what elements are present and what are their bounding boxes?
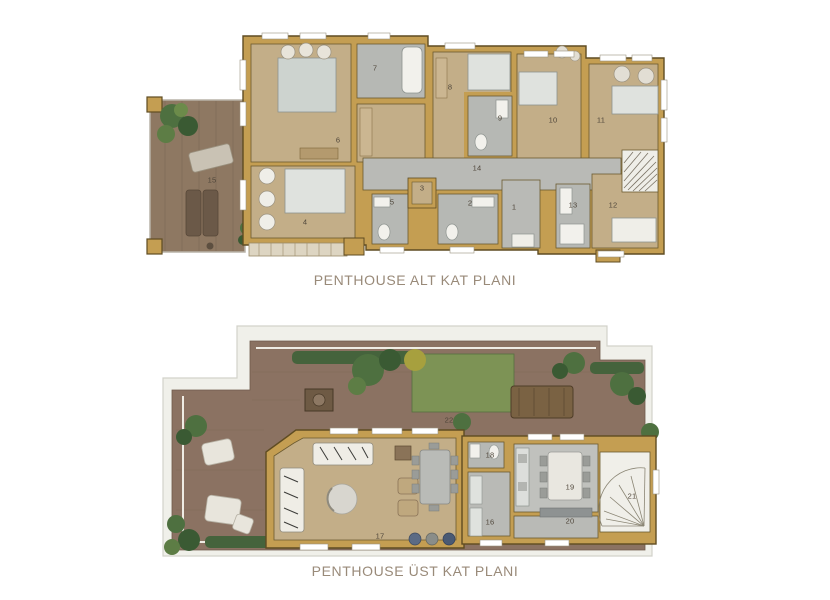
stairs-icon xyxy=(622,150,658,192)
bed xyxy=(519,72,557,105)
cooktop xyxy=(518,454,527,463)
stool xyxy=(409,533,421,545)
sink xyxy=(470,444,480,458)
spiral-stairs-icon xyxy=(599,452,650,532)
room-10-bedroom xyxy=(517,54,581,164)
side-table xyxy=(207,243,214,250)
kitchen-sink xyxy=(518,482,527,491)
counter xyxy=(540,508,592,517)
cabinet xyxy=(470,476,482,504)
grass-patch xyxy=(412,354,514,412)
sofa xyxy=(280,468,304,532)
sink xyxy=(560,188,572,214)
hedge xyxy=(590,362,644,374)
dresser xyxy=(300,148,338,159)
lower-floor-plan xyxy=(147,33,667,262)
toilet xyxy=(378,224,390,240)
shower xyxy=(560,224,584,244)
toilet xyxy=(489,445,499,459)
bed xyxy=(278,58,336,112)
sofa xyxy=(313,443,373,465)
bed xyxy=(285,169,345,213)
sink xyxy=(496,100,508,118)
terrace-15 xyxy=(147,97,254,254)
lower-plan-title: PENTHOUSE ALT KAT PLANI xyxy=(0,272,830,288)
armchair xyxy=(398,500,418,516)
tv-unit xyxy=(395,446,411,460)
room-3-closet xyxy=(412,182,432,204)
upper-floor-plan xyxy=(163,326,659,556)
sink xyxy=(374,197,390,207)
terrace-post xyxy=(147,239,162,254)
lounger xyxy=(186,190,201,236)
upper-plan-title: PENTHOUSE ÜST KAT PLANI xyxy=(0,563,830,579)
lounger xyxy=(203,190,218,236)
toilet xyxy=(475,134,487,150)
sink xyxy=(472,197,494,207)
bbq-icon xyxy=(305,389,333,411)
kitchen-table xyxy=(548,452,582,500)
floor-plan-page: PENTHOUSE ALT KAT PLANI PENTHOUSE ÜST KA… xyxy=(0,0,830,600)
pergola-table xyxy=(511,386,573,418)
terrace-post xyxy=(147,97,162,112)
entry-mat xyxy=(512,234,534,247)
area-20 xyxy=(514,516,598,538)
stool xyxy=(443,533,455,545)
stool xyxy=(426,533,438,545)
dining-table xyxy=(420,450,450,504)
floor-plans-drawing xyxy=(0,0,830,600)
bed xyxy=(468,54,510,90)
wardrobe xyxy=(436,58,447,98)
wardrobe xyxy=(360,108,372,156)
bed xyxy=(612,86,658,114)
toilet xyxy=(446,224,458,240)
bathtub xyxy=(402,47,422,93)
bench xyxy=(612,218,656,242)
cabinet xyxy=(470,508,482,536)
